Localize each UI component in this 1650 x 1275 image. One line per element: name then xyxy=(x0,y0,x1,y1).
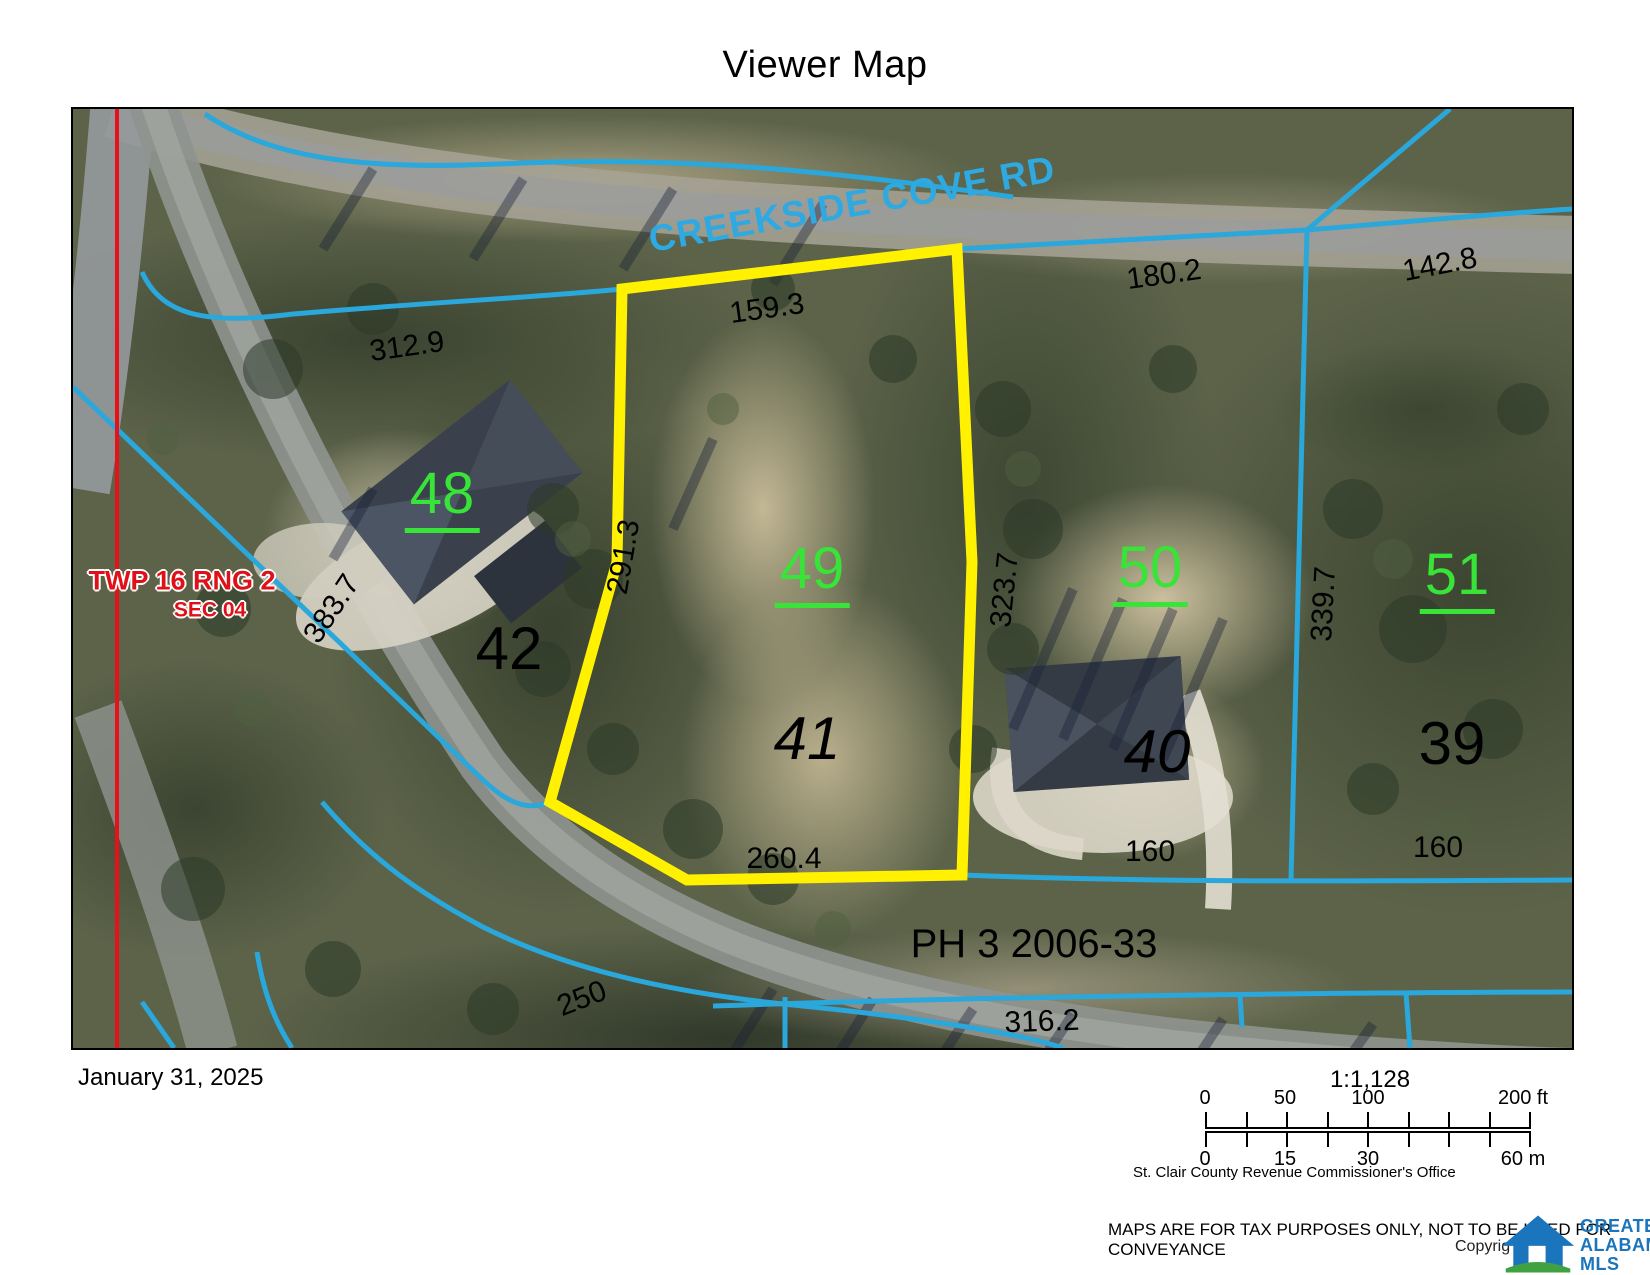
page-title: Viewer Map xyxy=(0,44,1650,87)
map-canvas: CREEKSIDE COVE RD TWP 16 RNG 2 SEC 04 31… xyxy=(71,107,1574,1050)
section-label: SEC 04 xyxy=(174,600,246,621)
phase-label: PH 3 2006-33 xyxy=(911,924,1158,964)
dimension-label: 160 xyxy=(1125,837,1175,867)
lot-number-50: 50 xyxy=(1113,539,1188,607)
tree-canopies xyxy=(161,267,1549,1035)
boundary-stub-3 xyxy=(1240,995,1242,1027)
scale-bar-feet xyxy=(1205,1112,1531,1129)
dimension-label: 160 xyxy=(1413,833,1463,863)
viewer-map-page: Viewer Map xyxy=(0,0,1650,1275)
mls-house-icon xyxy=(1500,1213,1576,1275)
source-attribution: St. Clair County Revenue Commissioner's … xyxy=(1133,1164,1456,1181)
lot-number-41: 41 xyxy=(774,709,841,769)
sw-road-edge-2 xyxy=(257,952,292,1048)
mls-logo-line2: ALABAMA xyxy=(1580,1236,1650,1255)
dimension-label: 316.2 xyxy=(1004,1006,1080,1039)
lot-number-48: 48 xyxy=(405,465,480,533)
south-boundary-upper xyxy=(962,875,1572,881)
scale-m-tick-60: 60 m xyxy=(1501,1148,1545,1171)
lot-number-49: 49 xyxy=(775,540,850,608)
lot-number-39: 39 xyxy=(1419,714,1486,774)
greater-alabama-mls-logo: GREATER ALABAMA MLS xyxy=(1500,1213,1650,1275)
lot-number-40: 40 xyxy=(1124,722,1191,782)
dimension-label: 260.4 xyxy=(746,844,821,874)
sw-road-edge-1 xyxy=(142,1002,174,1048)
lot-number-51: 51 xyxy=(1420,546,1495,614)
dimension-label: 339.7 xyxy=(1307,566,1341,643)
township-range-label: TWP 16 RNG 2 xyxy=(88,568,275,595)
scale-ft-tick-0: 0 xyxy=(1199,1087,1210,1110)
scale-ft-tick-200: 200 ft xyxy=(1498,1087,1548,1110)
lot50-lot51-boundary xyxy=(1291,230,1307,880)
lot-number-42: 42 xyxy=(476,619,543,679)
scale-ft-tick-100: 100 xyxy=(1351,1087,1384,1110)
dimension-label: 323.7 xyxy=(986,551,1024,629)
scale-ft-tick-50: 50 xyxy=(1274,1087,1296,1110)
map-date: January 31, 2025 xyxy=(78,1064,263,1092)
mls-logo-line1: GREATER xyxy=(1580,1217,1650,1236)
scale-bar-meters xyxy=(1205,1131,1531,1147)
mls-logo-line3: MLS xyxy=(1580,1255,1650,1274)
